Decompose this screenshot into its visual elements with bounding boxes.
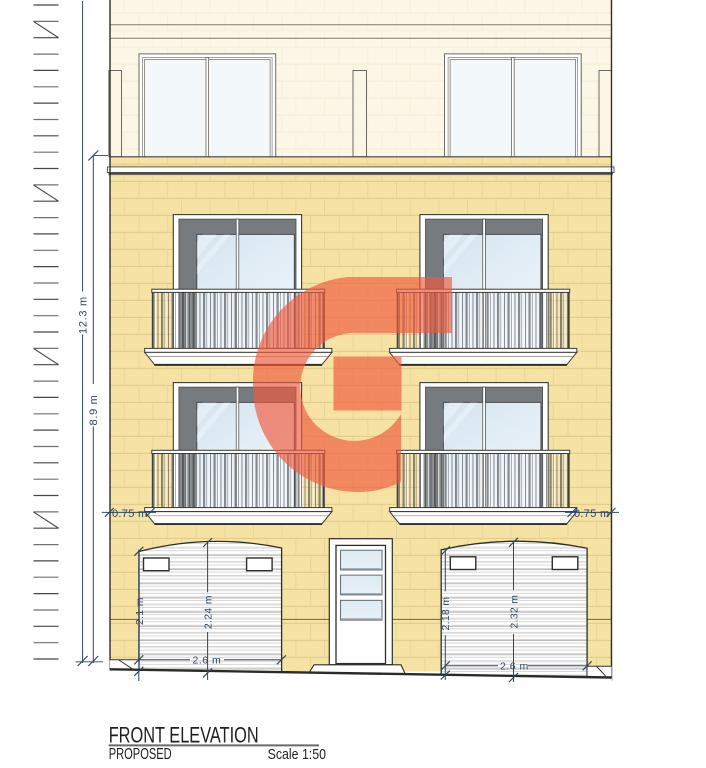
svg-text:2.6 m: 2.6 m [193,654,222,666]
svg-text:2.24 m: 2.24 m [204,595,215,629]
svg-text:Scale 1:50: Scale 1:50 [268,746,326,763]
svg-text:2.1 m: 2.1 m [135,597,146,625]
svg-text:FRONT ELEVATION: FRONT ELEVATION [109,723,259,748]
svg-text:2.32 m: 2.32 m [510,595,521,629]
svg-text:0.75 m: 0.75 m [574,508,609,520]
svg-text:2.6 m: 2.6 m [500,660,529,672]
svg-text:12.3 m: 12.3 m [78,296,90,334]
svg-text:0.75 m: 0.75 m [112,508,147,520]
svg-text:8.9 m: 8.9 m [88,394,100,425]
svg-text:2.18 m: 2.18 m [441,597,452,631]
svg-text:PROPOSED: PROPOSED [109,746,172,763]
